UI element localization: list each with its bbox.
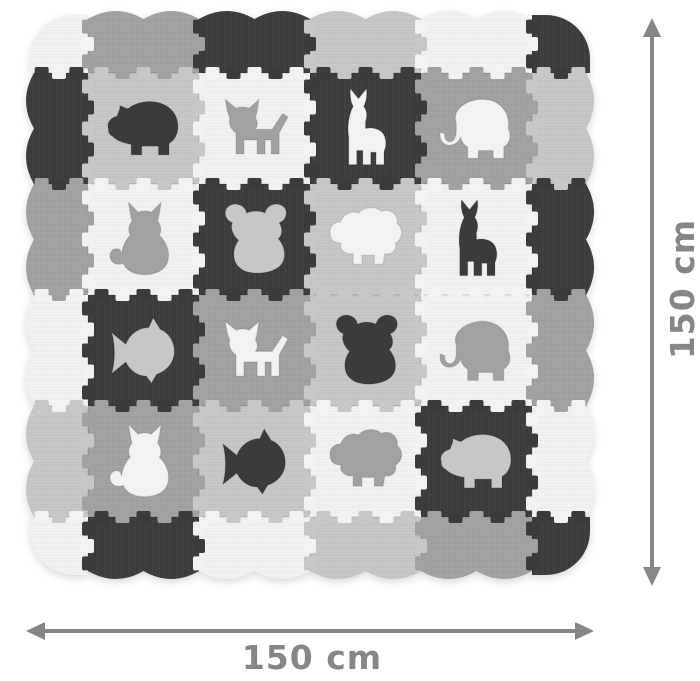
- mat-tile-5-4: [421, 517, 532, 579]
- mat-tile-5-0: [30, 517, 88, 575]
- product-image: 150 cm 150 cm: [0, 0, 700, 681]
- arrow-right-icon: [575, 622, 594, 640]
- mat-tile-0-1: [88, 11, 199, 73]
- mat-tile-2-0: [26, 184, 88, 295]
- mat-tile-0-2: [199, 11, 310, 73]
- mat-tile-3-5: [532, 295, 594, 406]
- width-dimension-label: 150 cm: [162, 638, 462, 677]
- mat-tile-0-0: [30, 15, 88, 73]
- mat-tile-0-3: [310, 11, 421, 73]
- mat-tile-5-2: [199, 517, 310, 579]
- mat-tile-5-3: [310, 517, 421, 579]
- mat-tile-0-4: [421, 11, 532, 73]
- arrow-down-icon: [643, 567, 661, 586]
- mat-tile-0-5: [532, 15, 590, 73]
- mat-tile-3-0: [26, 295, 88, 406]
- mat-tile-2-5: [532, 184, 594, 295]
- mat-tile-1-0: [26, 73, 88, 184]
- mat-tile-4-0: [26, 406, 88, 517]
- mat-tile-4-5: [532, 406, 594, 517]
- mat-tile-5-5: [532, 517, 590, 575]
- mat-tile-1-5: [532, 73, 594, 184]
- playmat: [0, 0, 700, 681]
- mat-tile-5-1: [88, 517, 199, 579]
- height-dimension-label: 150 cm: [661, 139, 700, 439]
